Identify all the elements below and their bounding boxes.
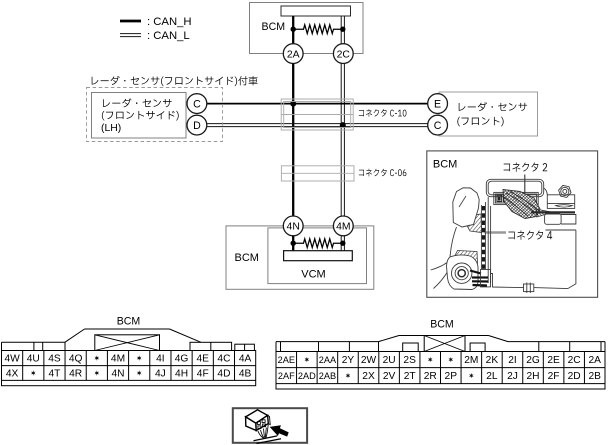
svg-text:4F: 4F: [197, 369, 209, 380]
svg-text:2X: 2X: [362, 371, 375, 382]
svg-text:2T: 2T: [404, 371, 416, 382]
svg-text:2P: 2P: [445, 371, 458, 382]
svg-text:4T: 4T: [49, 369, 61, 380]
svg-text:4E: 4E: [197, 354, 210, 365]
svg-text:2B: 2B: [588, 371, 601, 382]
svg-text:4B: 4B: [239, 369, 252, 380]
svg-text:C: C: [193, 98, 201, 110]
svg-text:2J: 2J: [507, 371, 518, 382]
svg-text:D: D: [193, 120, 201, 132]
svg-text:C: C: [434, 120, 442, 132]
svg-text:2AF: 2AF: [278, 371, 295, 381]
svg-text:2AE: 2AE: [278, 355, 295, 365]
svg-text:4G: 4G: [175, 354, 189, 365]
svg-text:2R: 2R: [424, 371, 437, 382]
svg-text:2E: 2E: [547, 355, 560, 366]
svg-text:BCM: BCM: [433, 159, 457, 171]
svg-text:4Q: 4Q: [69, 354, 83, 365]
svg-text:2A: 2A: [588, 355, 601, 366]
svg-text:4C: 4C: [217, 354, 230, 365]
svg-text:4W: 4W: [4, 354, 20, 365]
svg-text:4I: 4I: [156, 354, 165, 365]
svg-text:2G: 2G: [526, 355, 540, 366]
svg-text:2AA: 2AA: [319, 355, 337, 365]
svg-text:4H: 4H: [175, 369, 188, 380]
svg-text:BCM: BCM: [117, 315, 141, 327]
svg-text:: CAN_H: : CAN_H: [147, 16, 192, 28]
svg-text:BCM: BCM: [430, 319, 454, 331]
svg-text:2V: 2V: [383, 371, 396, 382]
svg-text:4S: 4S: [48, 354, 61, 365]
svg-text:2I: 2I: [508, 355, 517, 366]
svg-text:4X: 4X: [6, 369, 19, 380]
svg-text:2W: 2W: [361, 355, 377, 366]
svg-text:4M: 4M: [336, 222, 350, 233]
svg-text:4J: 4J: [155, 369, 166, 380]
svg-text:2H: 2H: [527, 371, 540, 382]
svg-text:2U: 2U: [383, 355, 396, 366]
svg-text:2C: 2C: [568, 355, 581, 366]
svg-text:4R: 4R: [69, 369, 82, 380]
svg-text:2S: 2S: [403, 355, 416, 366]
svg-text:4M: 4M: [111, 354, 125, 365]
svg-text:BCM: BCM: [235, 252, 259, 264]
svg-text:2Y: 2Y: [342, 355, 355, 366]
svg-text:2F: 2F: [548, 371, 560, 382]
svg-text:(LH): (LH): [101, 123, 121, 134]
svg-text:BCM: BCM: [262, 21, 286, 33]
svg-text:2AD: 2AD: [298, 371, 316, 381]
svg-text:VCM: VCM: [301, 269, 325, 281]
svg-text:2C: 2C: [337, 49, 351, 60]
svg-text:2D: 2D: [568, 371, 581, 382]
svg-text:2AB: 2AB: [319, 371, 336, 381]
svg-text:4U: 4U: [27, 354, 40, 365]
svg-text:4N: 4N: [111, 369, 124, 380]
svg-text:2K: 2K: [486, 355, 499, 366]
svg-text:: CAN_L: : CAN_L: [147, 30, 190, 42]
svg-text:4N: 4N: [287, 222, 300, 233]
svg-text:E: E: [434, 98, 441, 110]
svg-text:2A: 2A: [287, 49, 300, 60]
svg-text:4D: 4D: [217, 369, 230, 380]
svg-text:4A: 4A: [239, 354, 252, 365]
svg-text:2M: 2M: [464, 355, 478, 366]
svg-text:2L: 2L: [486, 371, 498, 382]
